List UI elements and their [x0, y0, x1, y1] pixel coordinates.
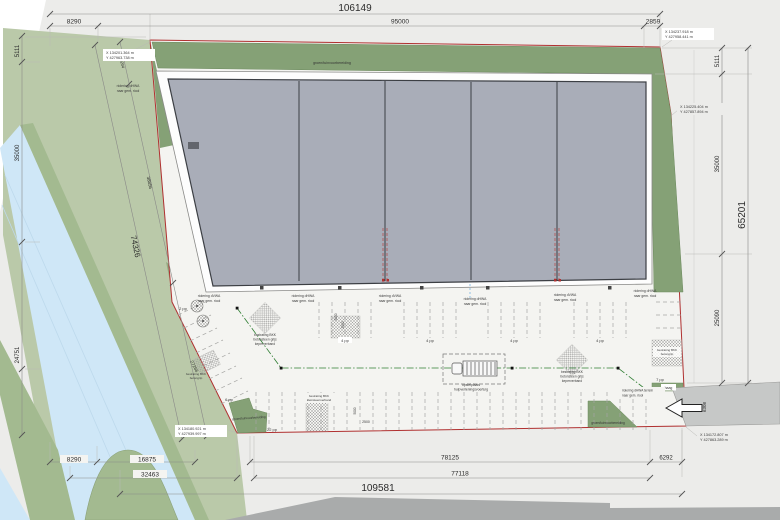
- joint-marker: [387, 279, 390, 282]
- svg-text:4 pp: 4 pp: [426, 338, 435, 343]
- svg-text:betongrip: betongrip: [190, 376, 203, 380]
- svg-text:bestrating BKK: bestrating BKK: [254, 333, 277, 337]
- svg-text:keperverband: keperverband: [562, 379, 582, 383]
- dim-bottom-a: 8290: [67, 457, 82, 464]
- svg-text:riolering dHWA: riolering dHWA: [464, 297, 487, 301]
- svg-text:hulpverleningsvoertuig: hulpverleningsvoertuig: [454, 388, 488, 392]
- dim-road-width: 6308: [702, 401, 707, 412]
- svg-text:riolering dHWA: riolering dHWA: [117, 84, 140, 88]
- dim-top-a: 8290: [67, 19, 82, 26]
- sewer-label-top-left: riolering dHWA naar gem. riool: [117, 84, 140, 93]
- paving-label-1: bestrating BKK betonsteen grijs keperver…: [253, 333, 277, 346]
- svg-text:bestrating BKK: bestrating BKK: [561, 370, 584, 374]
- dim-right-a: 5111: [715, 54, 721, 67]
- building-equipment-block: [188, 142, 199, 149]
- joint-marker: [554, 279, 557, 282]
- svg-text:riolering dHWA: riolering dHWA: [634, 289, 657, 293]
- svg-text:betongrip: betongrip: [661, 352, 674, 356]
- dim-bottom-f: 6292: [659, 456, 673, 462]
- dim-right-b: 35000: [715, 155, 721, 172]
- svg-text:kleinsteenverband: kleinsteenverband: [307, 398, 332, 402]
- svg-text:4 pp: 4 pp: [510, 338, 519, 343]
- joint-marker: [559, 279, 562, 282]
- dim-stall-depth-1: 5000: [334, 313, 338, 320]
- svg-text:riolering dVWA: riolering dVWA: [198, 294, 221, 298]
- coord-bottom-left-y: Y 427939.997 m: [178, 432, 206, 436]
- svg-text:riolering dVWA: riolering dVWA: [554, 293, 577, 297]
- green-label-top: groen/tuinvoorbereiding: [313, 61, 351, 65]
- coord-top-right-y: Y 427958.441 m: [665, 35, 693, 39]
- parking-count-6: 6 pp: [225, 397, 234, 402]
- site-plan: 106149 8290 95000 2859 5111 35000 24751 …: [0, 0, 780, 520]
- svg-text:naar gem. riool: naar gem. riool: [379, 299, 402, 303]
- svg-text:naar gem. riool: naar gem. riool: [198, 299, 221, 303]
- coord-bottom-right-y: Y 427863.289 m: [700, 438, 728, 442]
- tree-center: [196, 305, 198, 307]
- dim-top-c: 2859: [646, 19, 661, 26]
- svg-text:naar gem. riool: naar gem. riool: [117, 89, 140, 93]
- paving-hatch-bottom: [306, 402, 328, 431]
- dim-top-total: 106149: [338, 3, 372, 14]
- coord-mid-right-y: Y 427857.894 m: [680, 110, 708, 114]
- site-plan-canvas: 106149 8290 95000 2859 5111 35000 24751 …: [0, 0, 780, 520]
- parking-count-7: 7 pp: [656, 377, 665, 382]
- green-label-bottom-right: groen/tuinvoorbereiding: [591, 421, 625, 425]
- dim-right-c: 25090: [715, 309, 721, 326]
- paving-label-2: bestrating BKK betonsteen grijs keperver…: [560, 370, 584, 383]
- dim-bottom-c: 32463: [141, 472, 159, 479]
- svg-text:naar gem. riool: naar gem. riool: [622, 394, 644, 398]
- paving-label-bottom: bestrating BKK kleinsteenverband: [301, 393, 337, 403]
- dim-bottom-d: 78125: [441, 455, 459, 462]
- svg-text:opstelplaats: opstelplaats: [462, 383, 480, 387]
- dim-left-b: 35000: [15, 144, 21, 161]
- dim-top-b: 95000: [391, 19, 409, 26]
- coord-mid-right-x: X 134225.404 m: [680, 105, 708, 109]
- dim-left-a: 5111: [15, 44, 21, 57]
- svg-text:naar gem. riool: naar gem. riool: [634, 294, 657, 298]
- dim-bottom-e: 77118: [451, 471, 469, 478]
- svg-text:naar gem. riool: naar gem. riool: [292, 299, 315, 303]
- svg-text:betonsteen grijs: betonsteen grijs: [253, 338, 277, 342]
- svg-text:4 pp: 4 pp: [341, 338, 350, 343]
- joint-marker: [382, 279, 385, 282]
- coord-bottom-right-x: X 134172.807 m: [700, 433, 728, 437]
- coord-top-left-y: Y 427963.738 m: [106, 56, 134, 60]
- svg-text:betonsteen grijs: betonsteen grijs: [560, 375, 584, 379]
- dim-bottom-b: 16875: [138, 457, 156, 464]
- dim-bottom-total: 109581: [361, 483, 395, 494]
- svg-text:keperverband: keperverband: [255, 342, 275, 346]
- hedge-label: haag: [665, 386, 673, 390]
- svg-text:4 pp: 4 pp: [596, 338, 605, 343]
- paving-label-right: bestrating BKK betongrip: [653, 347, 681, 357]
- parking-count-22: 22 pp: [267, 427, 278, 432]
- coord-top-right-x: X 134237.918 m: [665, 30, 693, 34]
- sewer-label-terrain: riolering dHWA terrein naar gem. riool: [619, 387, 665, 398]
- svg-text:naar gem. riool: naar gem. riool: [464, 302, 487, 306]
- coord-bottom-left-x: X 134180.921 m: [178, 427, 206, 431]
- svg-text:riolering dHWA: riolering dHWA: [292, 294, 315, 298]
- svg-text:riolering dVWA: riolering dVWA: [379, 294, 402, 298]
- dim-left-c: 24751: [15, 346, 21, 363]
- parking-count-2: 2 pp: [179, 306, 188, 311]
- dim-stall-half-2: 2500: [362, 420, 370, 424]
- dim-right-total: 65201: [737, 201, 748, 229]
- building: [168, 79, 646, 286]
- coord-top-left-x: X 134201.364 m: [106, 51, 134, 55]
- svg-text:naar gem. riool: naar gem. riool: [554, 298, 577, 302]
- dim-stall-depth-2: 5000: [353, 407, 357, 414]
- tree-center: [202, 320, 204, 322]
- svg-text:riolering dHWA terrein: riolering dHWA terrein: [622, 389, 653, 393]
- dim-stall-half-1: 2500: [341, 321, 345, 328]
- truck-symbol: [452, 361, 497, 376]
